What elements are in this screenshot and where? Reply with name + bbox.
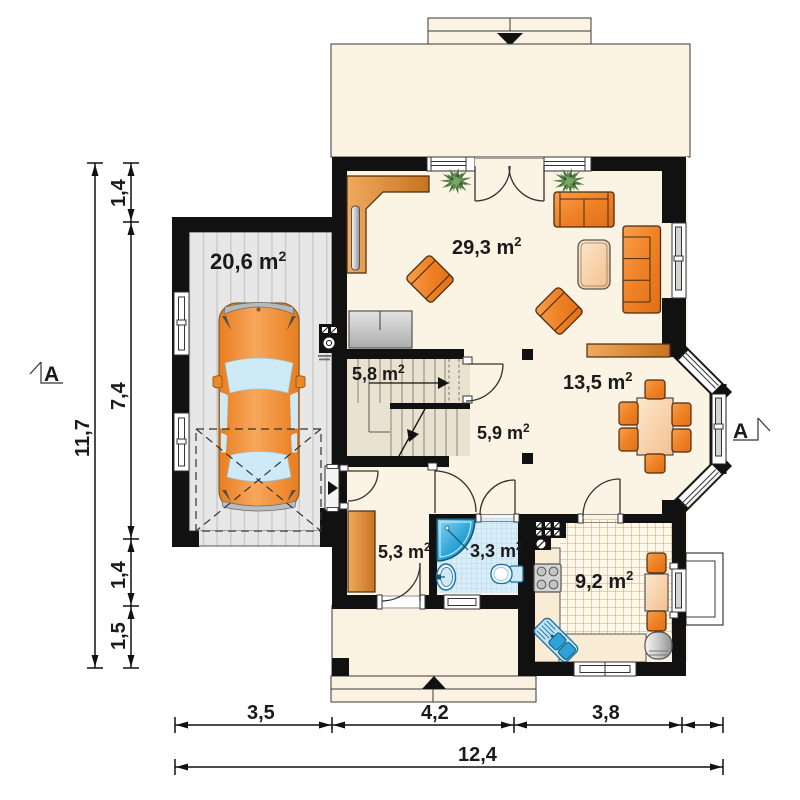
svg-text:13,5 m2: 13,5 m2 xyxy=(563,369,633,394)
svg-text:11,7: 11,7 xyxy=(72,419,94,457)
svg-text:7,4: 7,4 xyxy=(108,381,130,410)
svg-text:5,9 m2: 5,9 m2 xyxy=(477,421,530,443)
svg-text:5,8 m2: 5,8 m2 xyxy=(352,362,405,384)
svg-text:3,8: 3,8 xyxy=(592,702,620,724)
svg-text:A: A xyxy=(44,363,59,386)
svg-text:1,5: 1,5 xyxy=(108,622,130,650)
svg-text:12,4: 12,4 xyxy=(458,744,498,766)
svg-text:3,3 m2: 3,3 m2 xyxy=(470,539,523,561)
svg-text:9,2 m2: 9,2 m2 xyxy=(575,568,633,593)
svg-text:5,3 m2: 5,3 m2 xyxy=(378,540,431,562)
svg-text:3,5: 3,5 xyxy=(247,702,275,724)
svg-text:4,2: 4,2 xyxy=(421,702,449,724)
svg-text:1,4: 1,4 xyxy=(108,178,130,207)
svg-text:A: A xyxy=(733,420,748,443)
svg-text:29,3 m2: 29,3 m2 xyxy=(452,234,522,259)
svg-text:20,6 m2: 20,6 m2 xyxy=(210,248,287,274)
svg-text:1,4: 1,4 xyxy=(108,560,130,589)
